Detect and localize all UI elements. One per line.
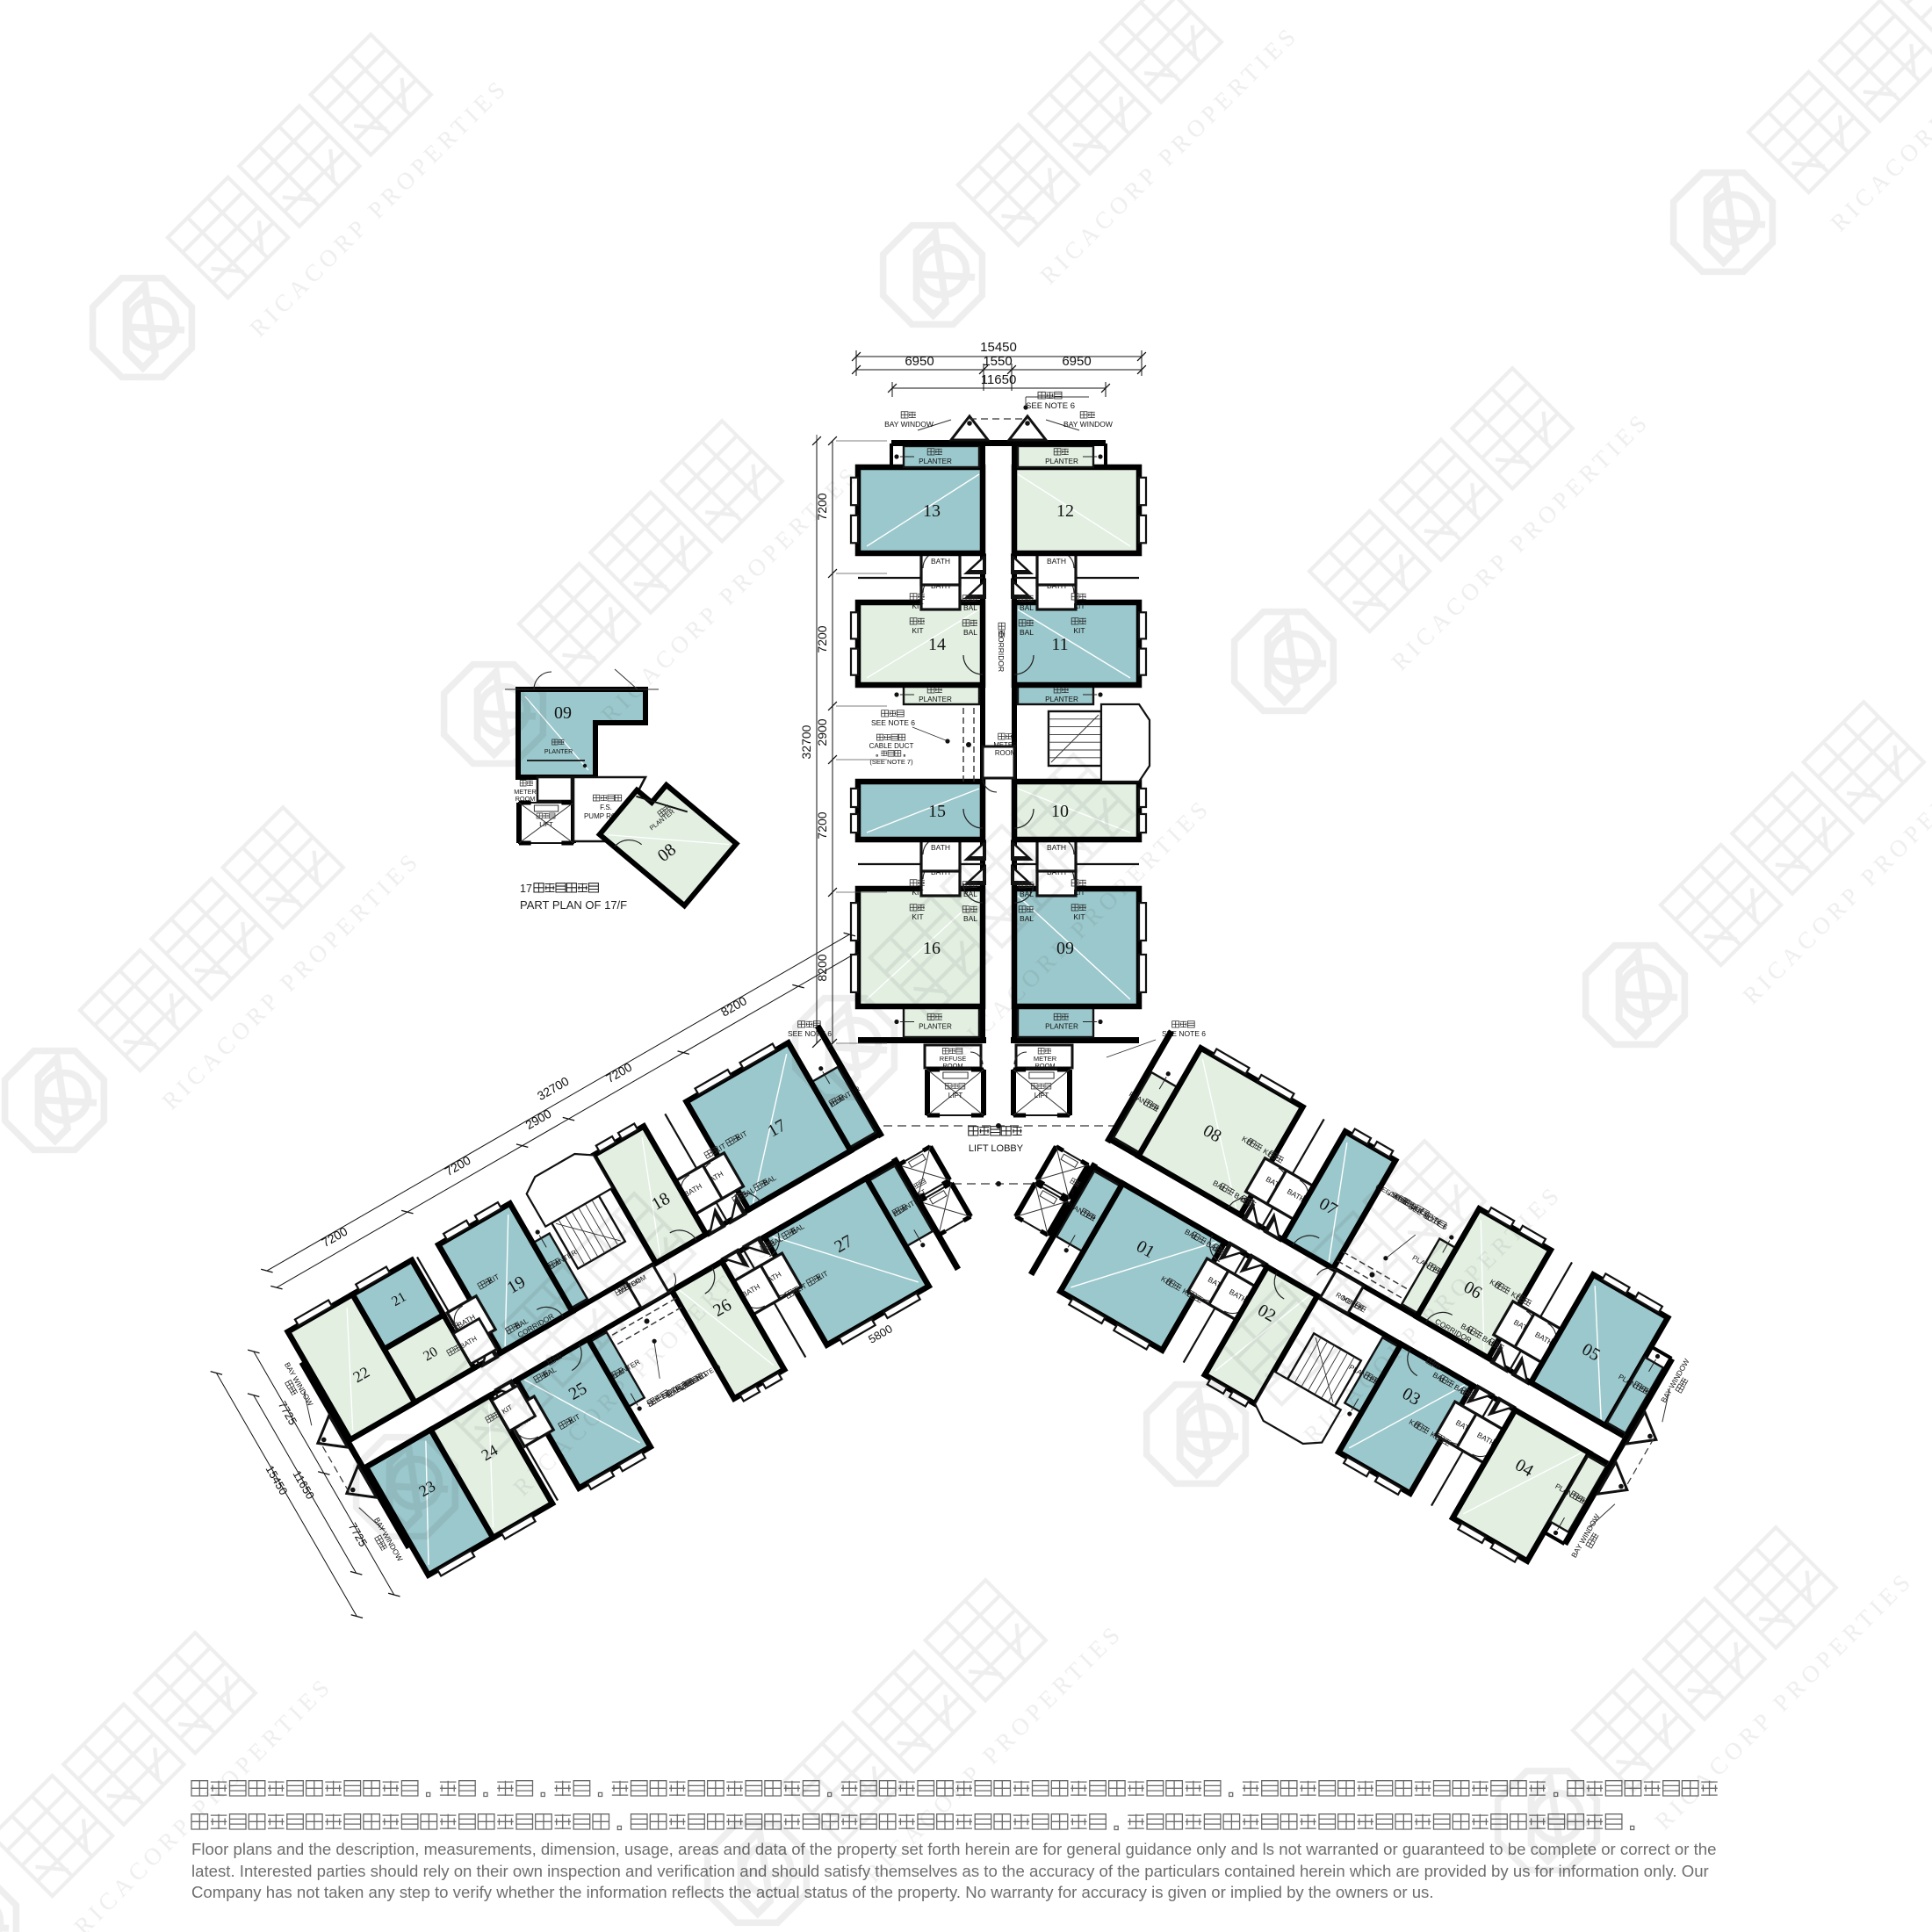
svg-text:6950: 6950 xyxy=(1062,354,1091,369)
svg-text:11: 11 xyxy=(1051,635,1068,654)
svg-text:PLANTER: PLANTER xyxy=(919,1023,952,1031)
svg-text:BATH: BATH xyxy=(931,843,950,852)
svg-text:KIT: KIT xyxy=(1073,602,1085,610)
svg-text:32700: 32700 xyxy=(799,724,813,759)
svg-text:13: 13 xyxy=(923,501,941,521)
svg-text:KIT: KIT xyxy=(912,888,923,897)
svg-text:KIT: KIT xyxy=(912,602,923,610)
svg-text:ROOM: ROOM xyxy=(995,749,1016,757)
svg-text:ROOM: ROOM xyxy=(1034,1062,1055,1070)
svg-text:LIFT: LIFT xyxy=(948,1092,963,1099)
svg-text:PLANTER: PLANTER xyxy=(1045,696,1078,703)
svg-text:LIFT LOBBY: LIFT LOBBY xyxy=(969,1143,1024,1154)
svg-text:latest. Interested parties sho: latest. Interested parties should rely o… xyxy=(191,1862,1709,1880)
svg-text:BAL: BAL xyxy=(1020,628,1034,637)
svg-text:KIT: KIT xyxy=(1073,888,1085,897)
svg-text:8200: 8200 xyxy=(815,954,829,981)
svg-text:CORRIDOR: CORRIDOR xyxy=(997,631,1006,672)
svg-text:BAY WINDOW: BAY WINDOW xyxy=(1063,420,1113,429)
svg-text:METER: METER xyxy=(993,741,1018,749)
svg-text:PLANTER: PLANTER xyxy=(919,458,952,465)
svg-text:2900: 2900 xyxy=(815,718,829,746)
svg-text:BAL: BAL xyxy=(963,603,977,612)
svg-text:17: 17 xyxy=(520,883,532,895)
svg-text:SEE NOTE 6: SEE NOTE 6 xyxy=(871,718,915,727)
svg-text:PART PLAN OF 17/F: PART PLAN OF 17/F xyxy=(520,898,627,912)
svg-text:PLANTER: PLANTER xyxy=(1045,1023,1078,1031)
svg-text:(SEE NOTE 7): (SEE NOTE 7) xyxy=(869,758,913,766)
svg-text:1550: 1550 xyxy=(983,354,1012,369)
svg-text:7200: 7200 xyxy=(815,811,829,839)
svg-text:BAL: BAL xyxy=(963,628,977,637)
svg-text:LIFT: LIFT xyxy=(1034,1092,1049,1099)
svg-text:7200: 7200 xyxy=(815,625,829,652)
svg-text:Company has not taken any step: Company has not taken any step to verify… xyxy=(191,1883,1434,1901)
svg-text:KIT: KIT xyxy=(912,626,923,635)
svg-text:15: 15 xyxy=(928,802,946,821)
svg-text:BATH: BATH xyxy=(1047,557,1066,566)
svg-text:09: 09 xyxy=(554,703,572,723)
svg-text:KIT: KIT xyxy=(1073,626,1085,635)
svg-text:PLANTER: PLANTER xyxy=(919,696,952,703)
svg-text:PLANTER: PLANTER xyxy=(1045,458,1078,465)
svg-text:11650: 11650 xyxy=(981,372,1017,387)
svg-text:SEE NOTE 6: SEE NOTE 6 xyxy=(1026,401,1075,411)
svg-text:BATH: BATH xyxy=(931,557,950,566)
svg-text:6950: 6950 xyxy=(905,354,934,369)
svg-text:15450: 15450 xyxy=(980,340,1017,355)
svg-text:PLANTER: PLANTER xyxy=(544,749,573,755)
svg-text:CABLE DUCT: CABLE DUCT xyxy=(869,742,914,750)
svg-text:12: 12 xyxy=(1056,501,1074,521)
svg-text:LIFT: LIFT xyxy=(539,820,553,828)
svg-text:Floor plans and the descriptio: Floor plans and the description, measure… xyxy=(191,1840,1716,1858)
svg-text:F.S.: F.S. xyxy=(600,804,612,811)
svg-text:BAY WINDOW: BAY WINDOW xyxy=(884,420,934,429)
svg-text:ROOM: ROOM xyxy=(942,1062,962,1070)
svg-text:14: 14 xyxy=(928,635,946,654)
svg-text:BAL: BAL xyxy=(1020,603,1034,612)
